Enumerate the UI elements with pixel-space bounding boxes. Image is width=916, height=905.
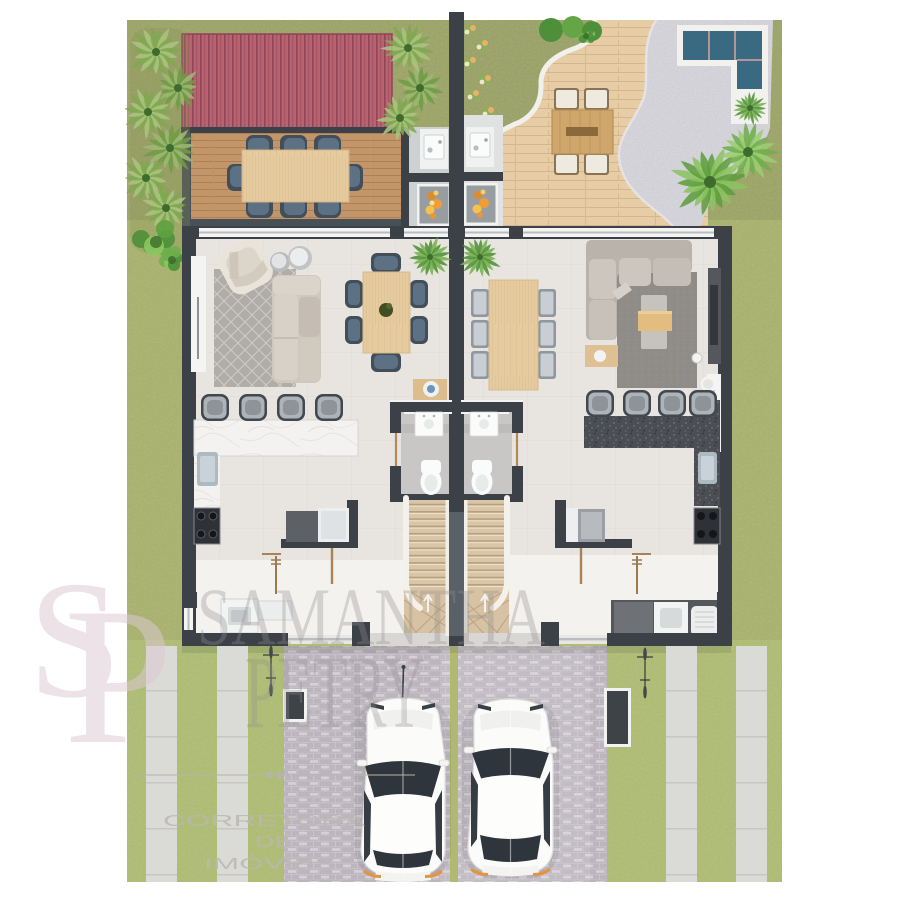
svg-text:DE: DE [255, 834, 293, 851]
svg-text:PETRY: PETRY [245, 635, 425, 750]
svg-text:P: P [64, 568, 173, 785]
svg-text:CORRETORA: CORRETORA [163, 813, 366, 830]
svg-text:IMÓVEIS: IMÓVEIS [204, 854, 336, 873]
